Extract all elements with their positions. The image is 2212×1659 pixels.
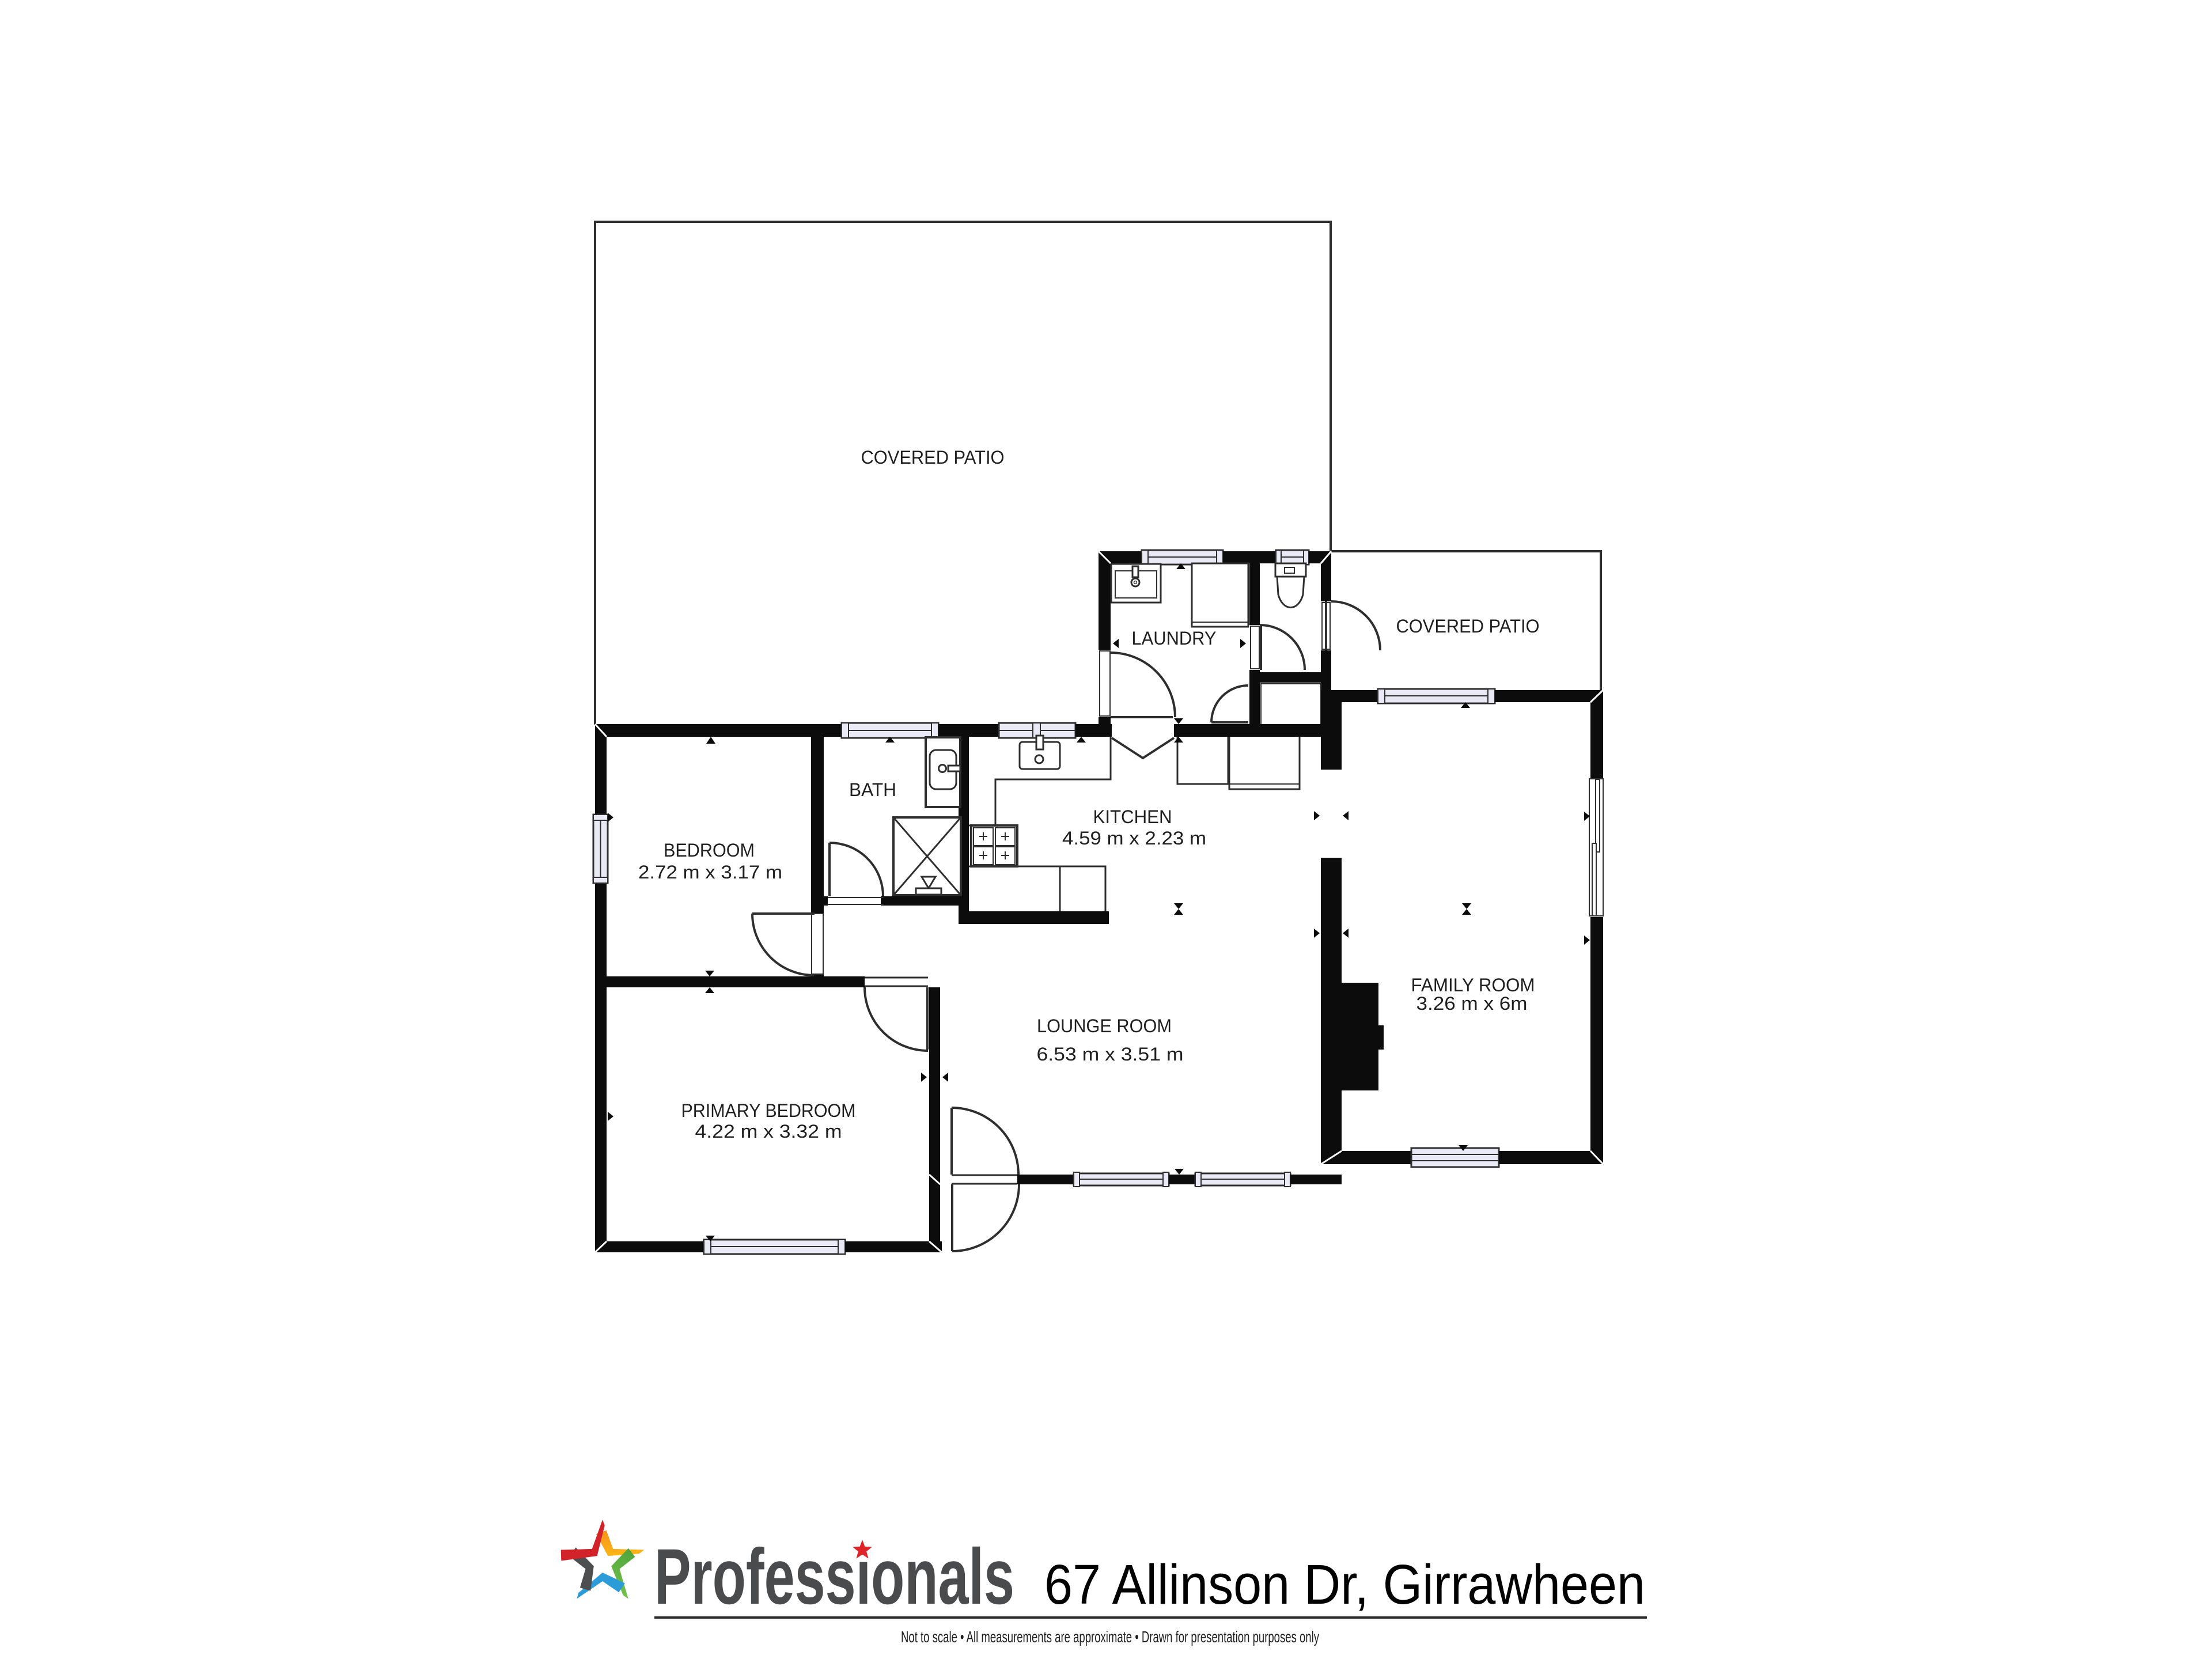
svg-text:BEDROOM: BEDROOM bbox=[664, 840, 755, 861]
svg-text:KITCHEN: KITCHEN bbox=[1093, 806, 1172, 827]
svg-text:FAMILY ROOM: FAMILY ROOM bbox=[1411, 975, 1535, 995]
svg-text:4.59 m x 2.23 m: 4.59 m x 2.23 m bbox=[1062, 828, 1206, 849]
svg-text:BATH: BATH bbox=[849, 779, 896, 800]
svg-text:PRIMARY BEDROOM: PRIMARY BEDROOM bbox=[681, 1100, 856, 1121]
svg-text:6.53 m x 3.51 m: 6.53 m x 3.51 m bbox=[1037, 1044, 1184, 1065]
svg-text:67 Allinson Dr, Girrawheen: 67 Allinson Dr, Girrawheen bbox=[1044, 1553, 1645, 1616]
svg-text:2.72 m x 3.17 m: 2.72 m x 3.17 m bbox=[638, 862, 782, 882]
svg-text:LAUNDRY: LAUNDRY bbox=[1132, 628, 1217, 649]
svg-text:3.26 m x 6m: 3.26 m x 6m bbox=[1416, 993, 1528, 1014]
svg-text:Not to scale • All measureme: Not to scale • All measurements are appr… bbox=[901, 1628, 1319, 1646]
svg-text:LOUNGE ROOM: LOUNGE ROOM bbox=[1037, 1016, 1172, 1036]
svg-text:COVERED PATIO: COVERED PATIO bbox=[1396, 616, 1540, 637]
svg-text:Professıonals: Professıonals bbox=[654, 1533, 1014, 1621]
svg-text:COVERED PATIO: COVERED PATIO bbox=[861, 447, 1005, 468]
svg-text:4.22 m x 3.32 m: 4.22 m x 3.32 m bbox=[695, 1121, 842, 1142]
